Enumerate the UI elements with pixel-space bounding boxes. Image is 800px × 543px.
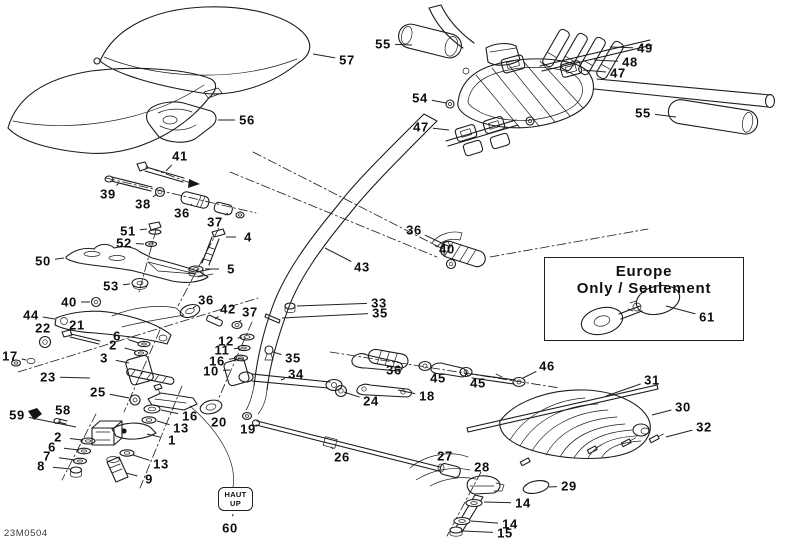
part-callout-32: 32 [696, 420, 712, 435]
part-callout-54: 54 [412, 91, 428, 106]
leader-line-41 [166, 165, 172, 171]
part-callout-42: 42 [220, 302, 236, 317]
part-callout-40: 40 [439, 242, 455, 257]
part-callout-50: 50 [35, 254, 51, 269]
leader-line-53 [123, 284, 130, 285]
part-callout-18: 18 [419, 389, 435, 404]
part-callout-22: 22 [35, 321, 51, 336]
leader-line-54 [432, 100, 446, 103]
part-callout-53: 53 [103, 279, 119, 294]
part-callout-35: 35 [372, 306, 388, 321]
leader-line-47 [583, 70, 606, 72]
leader-line-35 [273, 352, 282, 355]
part-callout-47: 47 [610, 66, 626, 81]
part-callout-55: 55 [635, 106, 651, 121]
part-callout-24: 24 [363, 394, 379, 409]
document-code: 23M0504 [4, 528, 48, 539]
part-callout-20: 20 [211, 415, 227, 430]
leader-line-31 [606, 384, 641, 396]
leader-line-35 [282, 314, 368, 318]
leader-line-7 [59, 458, 75, 460]
leader-line-13 [157, 421, 170, 425]
part-callout-17: 17 [2, 349, 18, 364]
leader-line-43 [325, 248, 351, 262]
part-callout-28: 28 [474, 460, 490, 475]
part-callout-27: 27 [437, 449, 453, 464]
leader-line-39 [117, 183, 120, 186]
leader-line-18 [398, 390, 415, 394]
leader-line-49 [610, 47, 633, 48]
leader-line-37 [239, 320, 241, 322]
haut-tag-line1: HAUT [224, 490, 246, 499]
leader-line-36 [193, 306, 196, 308]
leader-line-34 [281, 379, 285, 381]
part-callout-45: 45 [430, 371, 446, 386]
leader-line-30 [652, 410, 671, 415]
leader-line-38 [153, 194, 157, 197]
europe-box-title-line1: Europe [545, 263, 743, 280]
part-callout-60: 60 [222, 521, 238, 536]
part-callout-2: 2 [109, 338, 117, 353]
part-callout-58: 58 [55, 403, 71, 418]
part-callout-15: 15 [497, 526, 513, 541]
part-callout-21: 21 [69, 318, 85, 333]
leader-line-26 [331, 447, 333, 449]
leader-line-16 [161, 410, 178, 414]
leader-line-1 [147, 434, 160, 437]
part-callout-46: 46 [539, 359, 555, 374]
leader-line-48 [594, 60, 618, 61]
europe-only-box: Europe Only / Seulement [544, 257, 744, 341]
part-callout-19: 19 [240, 422, 256, 437]
part-callout-36: 36 [406, 223, 422, 238]
part-callout-29: 29 [561, 479, 577, 494]
leader-line-15 [463, 531, 493, 532]
part-callout-41: 41 [172, 149, 188, 164]
part-callout-34: 34 [288, 367, 304, 382]
leader-line-23 [60, 377, 90, 378]
exploded-parts-diagram: 5557564948475447554139383637515245055336… [0, 0, 800, 543]
part-callout-36: 36 [386, 363, 402, 378]
leader-line-44 [43, 317, 55, 319]
part-callout-37: 37 [242, 305, 258, 320]
leader-line-16 [229, 358, 237, 359]
leader-line-47 [433, 128, 449, 130]
part-callout-30: 30 [675, 400, 691, 415]
europe-box-title-line2: Only / Seulement [545, 280, 743, 297]
leader-line-50 [55, 258, 64, 259]
part-callout-56: 56 [239, 113, 255, 128]
part-callout-3: 3 [100, 351, 108, 366]
part-callout-8: 8 [37, 459, 45, 474]
part-callout-36: 36 [174, 206, 190, 221]
part-callout-55: 55 [375, 37, 391, 52]
part-callout-57: 57 [339, 53, 355, 68]
part-callout-31: 31 [644, 373, 660, 388]
haut-up-tag: HAUT UP [218, 487, 253, 511]
part-callout-36: 36 [198, 293, 214, 308]
part-callout-59: 59 [9, 408, 25, 423]
leader-line-60 [233, 514, 234, 516]
part-callout-39: 39 [100, 187, 116, 202]
part-callout-40: 40 [61, 295, 77, 310]
part-callout-43: 43 [354, 260, 370, 275]
leader-line-14 [471, 521, 498, 523]
leader-line-59 [29, 417, 76, 427]
part-callout-26: 26 [334, 450, 350, 465]
leader-line-13 [133, 455, 150, 460]
haut-tag-line2: UP [230, 499, 241, 508]
part-callout-25: 25 [90, 385, 106, 400]
leader-line-45 [428, 369, 429, 370]
part-callout-52: 52 [116, 236, 132, 251]
leader-line-3 [116, 360, 129, 363]
leader-line-42 [215, 316, 219, 319]
leader-line-24 [344, 392, 360, 397]
leader-line-17 [22, 359, 26, 360]
part-callout-47: 47 [413, 120, 429, 135]
leader-line-8 [53, 467, 71, 469]
leader-line-55 [395, 44, 412, 45]
leader-line-11 [234, 348, 240, 349]
leader-line-14 [484, 502, 511, 503]
leader-line-6 [64, 448, 79, 450]
leader-line-51 [140, 229, 147, 230]
part-callout-45: 45 [470, 376, 486, 391]
leader-line-6 [128, 340, 139, 343]
leader-line-45 [466, 374, 468, 376]
part-callout-14: 14 [515, 496, 531, 511]
leader-line-32 [666, 430, 692, 437]
part-callout-5: 5 [227, 262, 235, 277]
leader-line-9 [126, 473, 137, 476]
part-callout-13: 13 [153, 457, 169, 472]
part-callout-49: 49 [637, 41, 653, 56]
leader-line-46 [523, 371, 536, 378]
part-callout-37: 37 [207, 215, 223, 230]
part-callout-4: 4 [244, 230, 252, 245]
leader-line-2 [125, 348, 136, 351]
leader-line-12 [238, 337, 242, 338]
part-callout-10: 10 [203, 364, 219, 379]
part-callout-38: 38 [135, 197, 151, 212]
leader-line-33 [297, 303, 367, 306]
leader-line-55 [655, 114, 676, 117]
part-callout-35: 35 [285, 351, 301, 366]
leader-line-2 [70, 439, 82, 441]
leader-line-37 [225, 213, 228, 215]
leader-line-57 [313, 54, 335, 58]
leader-line-36 [191, 204, 192, 205]
leader-line-25 [110, 394, 129, 398]
part-callout-1: 1 [168, 433, 176, 448]
part-callout-23: 23 [40, 370, 56, 385]
part-callout-9: 9 [145, 472, 153, 487]
